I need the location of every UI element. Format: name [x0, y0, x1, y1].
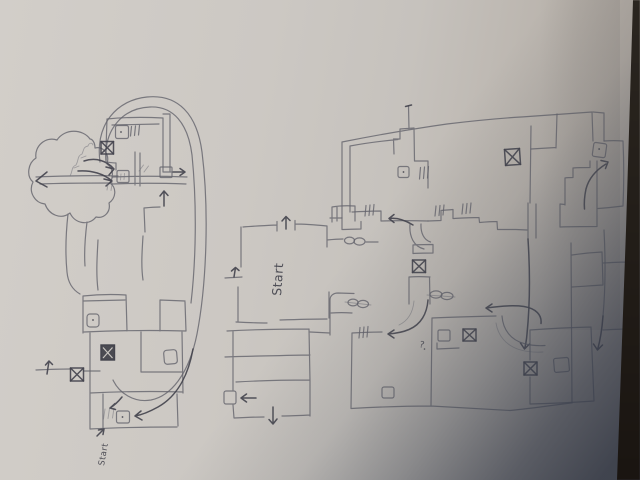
top-middle-room: [409, 126, 536, 304]
s-corridor-inner: [496, 323, 543, 352]
item-box-dot: [92, 319, 94, 321]
item-box-dot: [120, 131, 122, 133]
start-label: Start: [97, 442, 111, 466]
up-arrow: [160, 191, 168, 206]
curved-right-arrow: [78, 171, 112, 186]
curved-left-arrow: [389, 215, 413, 226]
right-arrow: [173, 169, 185, 176]
item-box: [224, 391, 236, 404]
s-corridor: [502, 316, 545, 346]
curved-corridor-inner: [399, 301, 414, 325]
item-box: [116, 126, 129, 139]
item-box: [553, 357, 569, 372]
door-hatch: [107, 184, 112, 191]
door-hatch: [365, 205, 374, 217]
x-marker-box: [413, 260, 426, 273]
door-pill: [345, 237, 366, 245]
up-arrow: [46, 361, 53, 374]
map-sketch: Start Start: [0, 0, 640, 480]
bottom-rooms: [351, 243, 572, 411]
door-hatch: [104, 408, 115, 419]
up-arrow: [232, 268, 240, 278]
curved-left-arrow: [388, 300, 428, 338]
cave-blob: [29, 131, 118, 294]
x-marker-box: [71, 368, 84, 381]
item-box: [163, 349, 177, 364]
door-hatch: [131, 126, 140, 137]
down-arrow: [521, 239, 530, 349]
upper-left-block: [342, 106, 604, 230]
loop-outline: [99, 97, 206, 401]
door-pill: [345, 299, 371, 308]
up-arrow: [282, 217, 290, 230]
item-box: [382, 387, 394, 398]
item-box: [438, 330, 450, 341]
x-marker-box: [101, 345, 115, 360]
curved-down-left-arrow: [110, 397, 122, 410]
item-box-dot: [122, 416, 124, 418]
item-box: [592, 142, 607, 158]
right-map: Start: [224, 105, 630, 424]
item-box-dot: [403, 171, 405, 173]
start-label-arrow: [97, 429, 104, 436]
left-map: Start: [29, 97, 206, 467]
x-marker-box: [524, 362, 537, 375]
photo-of-paper-map: Start Start: [0, 0, 640, 480]
door-hatch: [420, 167, 429, 180]
left-arrow: [36, 172, 47, 187]
hook-left-arrow: [486, 304, 541, 324]
door-pill: [427, 291, 455, 300]
left-arrow: [241, 394, 256, 402]
down-arrow: [594, 316, 604, 350]
flag-mark: [406, 105, 412, 107]
top-right-block: [531, 114, 624, 316]
start-label: Start: [269, 262, 286, 296]
x-marker-box: [504, 148, 520, 165]
door-hatch: [462, 203, 471, 214]
right-bottom-block: [530, 252, 630, 404]
lower-left-wing: [225, 293, 354, 418]
down-arrow: [269, 407, 277, 424]
question-mark-dot: [424, 348, 426, 350]
x-marker-box: [463, 329, 476, 341]
